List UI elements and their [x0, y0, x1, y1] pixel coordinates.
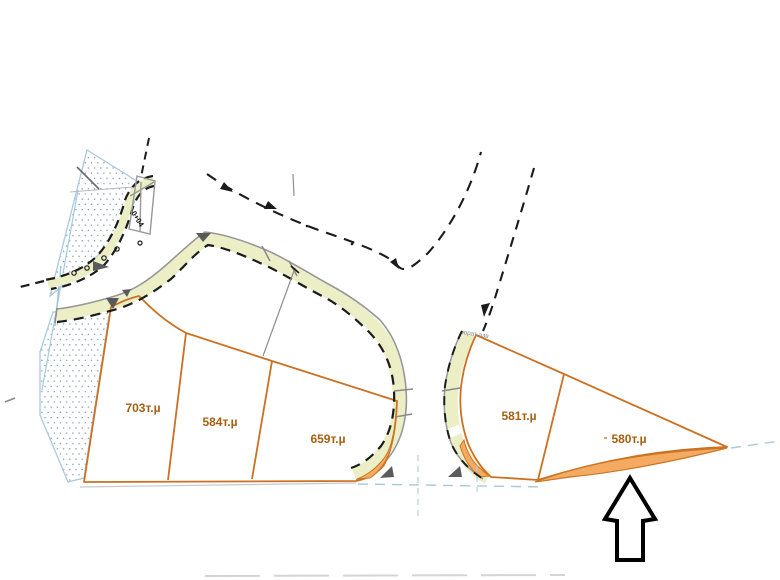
svg-text:703т.µ: 703т.µ: [125, 401, 160, 415]
svg-text:659т.µ: 659т.µ: [310, 432, 345, 446]
svg-text:584т.µ: 584т.µ: [202, 415, 237, 429]
svg-text:581т.µ: 581т.µ: [501, 409, 536, 423]
svg-text:580т.µ: 580т.µ: [611, 432, 646, 446]
